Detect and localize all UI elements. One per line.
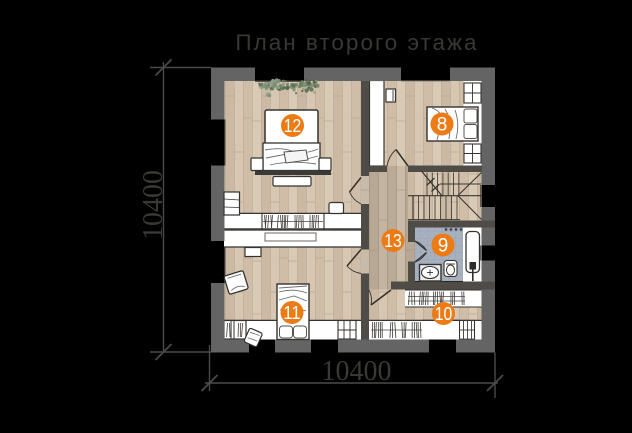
svg-text:12: 12 bbox=[284, 115, 302, 136]
svg-text:10400: 10400 bbox=[322, 356, 392, 387]
svg-text:8: 8 bbox=[437, 115, 448, 136]
svg-text:9: 9 bbox=[438, 236, 449, 257]
svg-text:11: 11 bbox=[283, 302, 301, 323]
svg-text:13: 13 bbox=[384, 230, 402, 251]
svg-text:План второго этажа: План второго этажа bbox=[235, 30, 478, 55]
svg-text:10400: 10400 bbox=[138, 170, 169, 240]
svg-text:10: 10 bbox=[435, 303, 453, 324]
